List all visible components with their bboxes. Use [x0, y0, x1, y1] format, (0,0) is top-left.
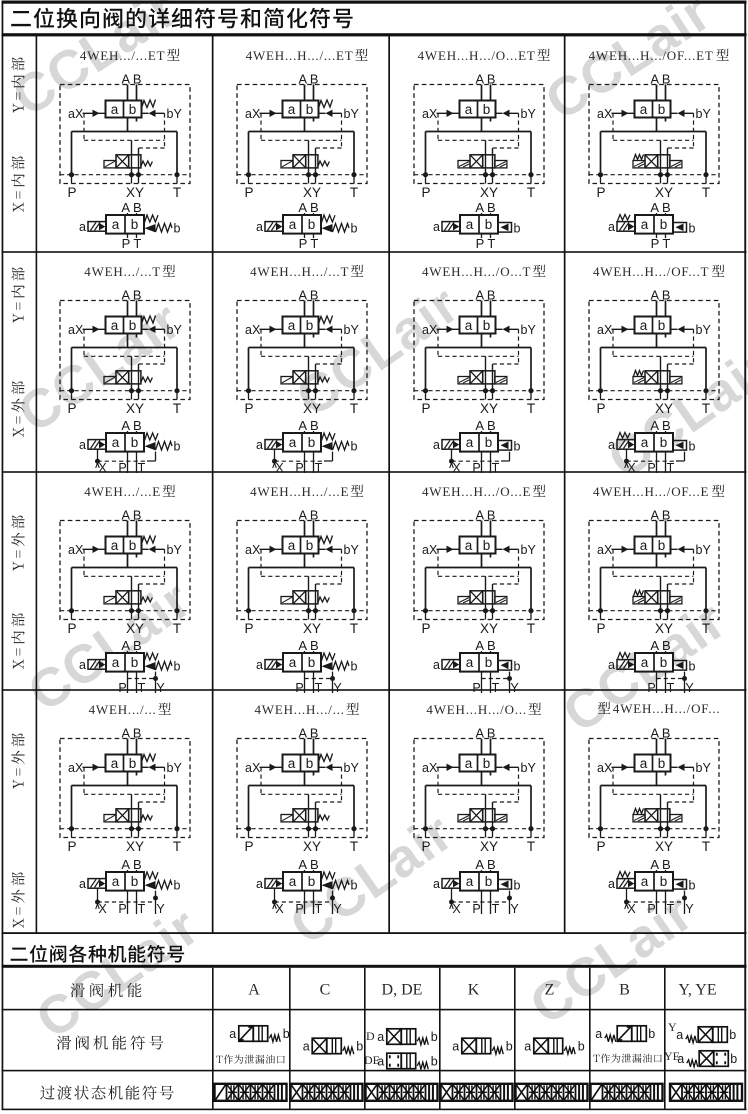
svg-text:a: a: [377, 1030, 384, 1044]
svg-text:b: b: [283, 1027, 290, 1041]
svg-text:D, DE: D, DE: [382, 982, 423, 999]
svg-text:b: b: [729, 1028, 736, 1042]
svg-text:b: b: [431, 1055, 438, 1069]
svg-text:K: K: [468, 982, 480, 999]
svg-text:4WEH...H.../...ET: 4WEH...H.../...ET: [246, 48, 354, 63]
svg-text:Y, YE: Y, YE: [678, 982, 716, 999]
svg-text:C: C: [320, 982, 331, 999]
svg-text:4WEH.../...ET: 4WEH.../...ET: [80, 48, 165, 63]
svg-text:4WEH...H.../O...ET: 4WEH...H.../O...ET: [418, 48, 536, 63]
svg-text:4WEH...H.../OF...T: 4WEH...H.../OF...T: [593, 264, 709, 279]
svg-text:4WEH...H.../O...: 4WEH...H.../O...: [426, 702, 527, 717]
svg-text:4WEH...H.../...: 4WEH...H.../...: [255, 702, 345, 717]
svg-text:B: B: [619, 982, 630, 999]
svg-text:a: a: [524, 1040, 531, 1054]
svg-text:4WEH.../...T: 4WEH.../...T: [84, 264, 161, 279]
svg-text:4WEH.../...: 4WEH.../...: [89, 702, 157, 717]
svg-text:b: b: [506, 1040, 513, 1054]
svg-text:b: b: [648, 1027, 655, 1041]
svg-text:a: a: [229, 1027, 236, 1041]
svg-text:b: b: [431, 1030, 438, 1044]
svg-text:a: a: [677, 1052, 684, 1066]
svg-text:b: b: [356, 1040, 363, 1054]
svg-text:4WEH...H.../OF...E: 4WEH...H.../OF...E: [593, 484, 709, 499]
svg-text:4WEH.../...E: 4WEH.../...E: [84, 484, 161, 499]
svg-text:b: b: [578, 1040, 585, 1054]
svg-text:A: A: [248, 982, 260, 999]
svg-text:4WEH...H.../O...T: 4WEH...H.../O...T: [422, 264, 531, 279]
svg-text:a: a: [676, 1028, 683, 1042]
svg-text:4WEH...H.../O...E: 4WEH...H.../O...E: [422, 484, 531, 499]
svg-text:4WEH...H.../OF...: 4WEH...H.../OF...: [613, 701, 721, 716]
svg-text:a: a: [303, 1040, 310, 1054]
svg-text:b: b: [730, 1052, 737, 1066]
svg-text:4WEH...H.../...T: 4WEH...H.../...T: [250, 264, 349, 279]
svg-text:D: D: [366, 1029, 375, 1043]
svg-text:a: a: [595, 1027, 602, 1041]
svg-text:Z: Z: [545, 982, 555, 999]
svg-text:a: a: [377, 1055, 384, 1069]
svg-text:4WEH...H.../OF...ET: 4WEH...H.../OF...ET: [589, 48, 714, 63]
svg-text:4WEH...H.../...E: 4WEH...H.../...E: [250, 484, 349, 499]
svg-text:a: a: [452, 1040, 459, 1054]
